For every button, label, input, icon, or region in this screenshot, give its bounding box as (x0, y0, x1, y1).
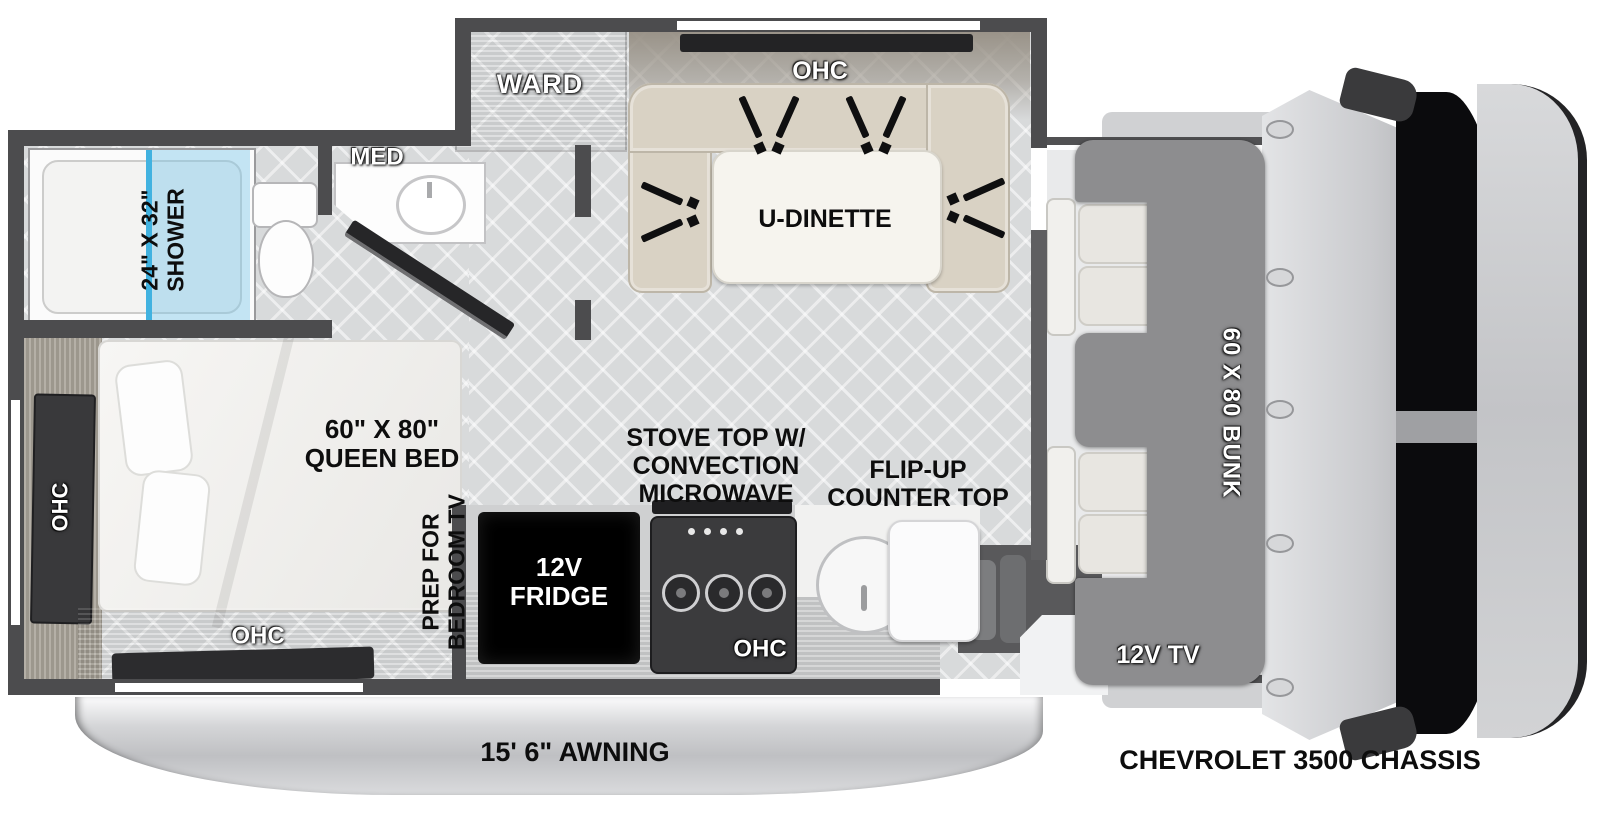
blanket-fold (212, 335, 294, 629)
window-dinette (677, 21, 980, 30)
seatbelt-strap (845, 95, 869, 138)
seatbelt-strap (640, 181, 683, 205)
wall-ward-left (455, 18, 471, 146)
wall-bath-right-lower (575, 300, 591, 340)
seat-backrest (1046, 446, 1076, 584)
hinge-rivet (1266, 534, 1294, 553)
faucet-icon (427, 182, 432, 198)
stove-knob (704, 528, 711, 535)
stove-knob (736, 528, 743, 535)
ward-label: WARD (497, 69, 584, 99)
seatbelt-strap (962, 177, 1005, 201)
seatbelt-buckle (753, 141, 766, 154)
seatbelt-buckle (946, 192, 959, 205)
hinge-rivet (1266, 400, 1294, 419)
window-rear (11, 400, 20, 625)
queen-bed (98, 340, 462, 612)
tv-label: 12V TV (1116, 641, 1199, 669)
seatbelt-icon (733, 95, 805, 155)
bunk-label: 60 X 80 BUNK (1217, 328, 1244, 499)
queen-bed-label: 60" X 80" QUEEN BED (305, 415, 460, 473)
u-dinette-label: U-DINETTE (758, 205, 891, 233)
seatbelt-buckle (946, 210, 959, 223)
chassis-label: CHEVROLET 3500 CHASSIS (1119, 745, 1481, 775)
fridge-label: 12V FRIDGE (510, 553, 608, 611)
hinge-rivet (1266, 678, 1294, 697)
queen-bed-label-line1: 60" X 80" (305, 415, 460, 444)
prep-tv-label-line1: PREP FOR (418, 494, 444, 650)
fridge-label-line2: FRIDGE (510, 582, 608, 611)
seatbelt-icon (840, 95, 912, 155)
seatbelt-buckle (860, 141, 873, 154)
shower-label-line2: SHOWER (163, 188, 189, 292)
stove-burner-icon (705, 574, 743, 612)
rv-floorplan: 24" X 32" SHOWER MED WARD OHC U-DINETTE … (0, 0, 1600, 821)
stove-label-line1: STOVE TOP W/ (626, 424, 805, 452)
hinge-rivet (1266, 268, 1294, 287)
seatbelt-buckle (771, 141, 784, 154)
stove-label: STOVE TOP W/ CONVECTION MICROWAVE (626, 424, 805, 508)
flip-up-counter (888, 520, 980, 642)
faucet-icon (861, 585, 867, 611)
seatbelt-buckle (878, 141, 891, 154)
prep-tv-label: PREP FOR BEDROOM TV (418, 494, 470, 650)
toilet-bowl (258, 220, 314, 298)
vanity-sink (396, 175, 466, 235)
kitchen-ohc-label: OHC (733, 637, 786, 664)
seatbelt-strap (962, 214, 1005, 238)
stove-burner-icon (662, 574, 700, 612)
stove-label-line2: CONVECTION (626, 452, 805, 480)
wall-bath-right-upper (575, 145, 591, 217)
fridge-label-line1: 12V (510, 553, 608, 582)
shower-label-line1: 24" X 32" (137, 188, 163, 292)
seatbelt-strap (775, 95, 799, 138)
med-label: MED (350, 145, 403, 172)
seatbelt-strap (640, 218, 683, 242)
wall-front-right (1031, 18, 1047, 148)
seatbelt-icon (640, 176, 700, 248)
awning-label: 15' 6" AWNING (480, 737, 669, 767)
bedroom-ohc-label: OHC (231, 624, 284, 651)
wall-toilet-stub (318, 145, 332, 215)
pillow (132, 469, 211, 587)
stove-knob (720, 528, 727, 535)
queen-bed-label-line2: QUEEN BED (305, 444, 460, 473)
cab-front-cap (1477, 84, 1587, 738)
shower-label: 24" X 32" SHOWER (137, 188, 189, 292)
flip-counter-label: FLIP-UP COUNTER TOP (827, 456, 1009, 512)
flip-counter-label-line1: FLIP-UP (827, 456, 1009, 484)
dinette-ohc-label: OHC (792, 57, 848, 85)
seatbelt-buckle (686, 196, 699, 209)
flip-counter-label-line2: COUNTER TOP (827, 484, 1009, 512)
window-shade (680, 34, 973, 52)
wall-bath-bottom (8, 320, 332, 338)
entry-step-2 (1000, 555, 1026, 643)
rear-ohc-label: OHC (49, 483, 74, 532)
bunk-tab-top (1075, 140, 1175, 202)
window-bedroom (115, 683, 363, 692)
stove-burner-icon (748, 574, 786, 612)
seatbelt-strap (882, 95, 906, 138)
hinge-rivet (1266, 120, 1294, 139)
seatbelt-buckle (686, 214, 699, 227)
seat-backrest (1046, 198, 1076, 336)
prep-tv-label-line2: BEDROOM TV (444, 494, 470, 650)
wall-cab-junction (1031, 230, 1047, 560)
stove-label-line3: MICROWAVE (626, 480, 805, 508)
pillow (113, 358, 194, 477)
seatbelt-icon (946, 172, 1006, 244)
stove-knob (688, 528, 695, 535)
bunk-tab-middle (1075, 333, 1175, 447)
seatbelt-strap (738, 95, 762, 138)
